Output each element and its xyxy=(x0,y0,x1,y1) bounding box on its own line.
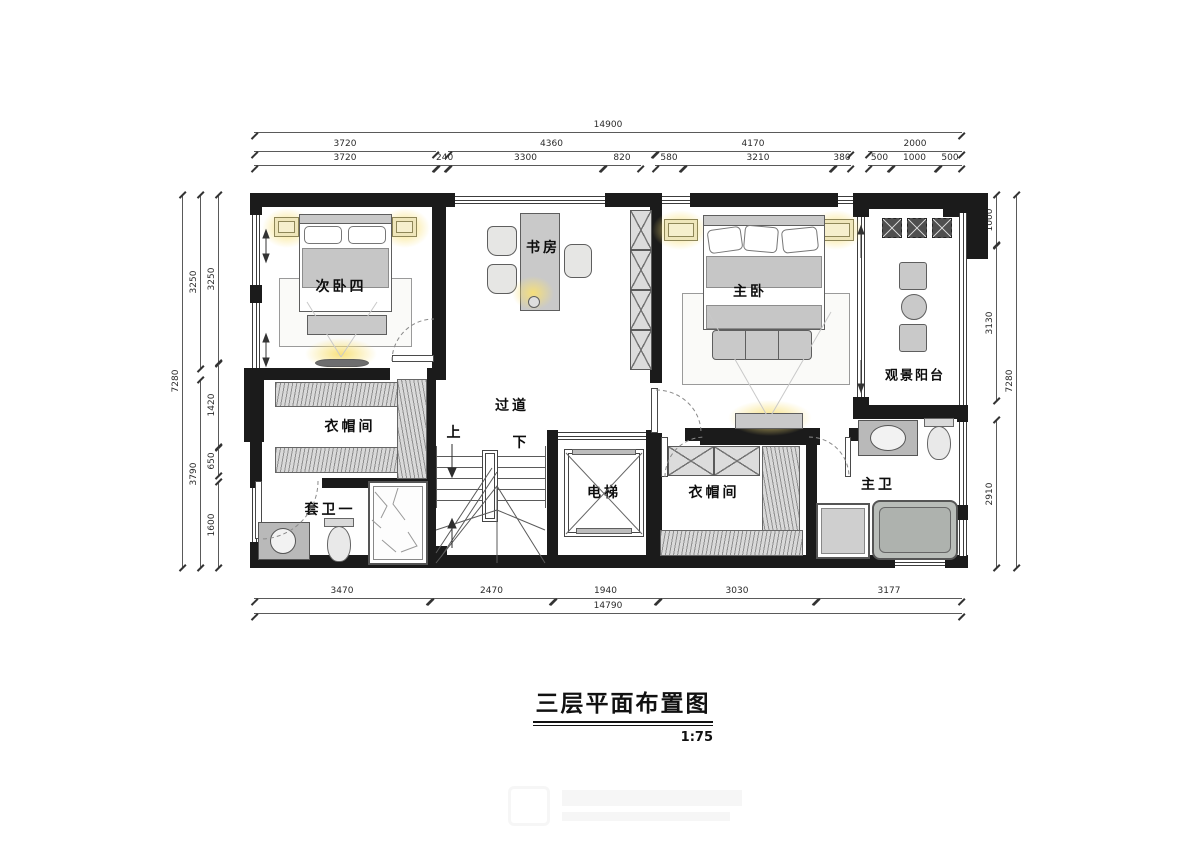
dim-top-r3-5: 3210 xyxy=(683,153,833,166)
desk-chair xyxy=(487,264,517,294)
nightstand xyxy=(820,219,854,241)
window-mark-arrow xyxy=(263,358,269,366)
window-masterbath-right-1 xyxy=(959,422,967,505)
dim-right-1: 3130 xyxy=(984,245,997,400)
dim-top-r2-3: 2000 xyxy=(868,139,962,152)
wall-balcony-south xyxy=(853,405,965,419)
bath1-toilet xyxy=(324,518,354,562)
wall-right-pier xyxy=(957,505,968,520)
dim-left-r2-1: 3790 xyxy=(188,380,201,567)
tv-console xyxy=(315,359,369,367)
desk-chair xyxy=(487,226,517,256)
room-label-bath1: 套卫一 xyxy=(305,499,356,519)
wall-closet2-north xyxy=(700,433,820,445)
window-mark-arrow xyxy=(263,334,269,342)
stairs-up-label: 上 xyxy=(447,422,464,442)
dim-top-r3-8: 1000 xyxy=(891,153,938,166)
bathtub xyxy=(872,500,958,560)
wall-left-corner-top xyxy=(250,193,262,215)
dim-top-r3-1: 240 xyxy=(436,153,448,166)
dim-top-r3-3: 820 xyxy=(603,153,641,166)
window-balcony-right xyxy=(959,213,967,405)
dim-top-r3-2: 3300 xyxy=(448,153,603,166)
balcony-table xyxy=(901,294,927,320)
balcony-stool xyxy=(899,324,927,352)
dim-top-r2-0: 3720 xyxy=(254,139,436,152)
wall-elevator-right xyxy=(646,430,657,568)
room-label-balcony: 观景阳台 xyxy=(885,365,945,384)
dim-bot-0: 3470 xyxy=(254,586,430,599)
bench-divider xyxy=(745,331,746,359)
bath1-shower xyxy=(368,481,428,565)
dim-top-r2-2: 4170 xyxy=(655,139,851,152)
dim-bot-4: 3177 xyxy=(816,586,962,599)
clothes-rack xyxy=(660,530,803,556)
wall-left-pier xyxy=(250,285,262,303)
pillar-master-balcony-top xyxy=(853,193,869,217)
dim-left-r2-0: 3250 xyxy=(188,195,201,368)
stairs-newel xyxy=(482,450,498,522)
wall-right-corner xyxy=(957,556,968,568)
bed-bench xyxy=(307,315,387,335)
cabinet-cell xyxy=(714,446,760,476)
window-masterbath-right-2 xyxy=(959,520,967,556)
wall-elevator-left xyxy=(547,430,558,568)
cabinet-cell xyxy=(630,250,652,290)
dim-left-r3-1: 1420 xyxy=(206,363,219,447)
elevator-sill xyxy=(576,528,632,534)
cabinet-cell xyxy=(630,210,652,250)
pillow xyxy=(348,226,386,244)
floor-plan-sheet: 14900 3720 4360 4170 2000 3720 240 3300 … xyxy=(0,0,1200,842)
clothes-rack xyxy=(275,382,398,407)
room-label-study: 书房 xyxy=(526,237,560,257)
pillow xyxy=(743,225,779,254)
drawing-scale: 1:75 xyxy=(533,730,713,745)
dim-top-total: 14900 xyxy=(254,120,962,133)
clothes-rack xyxy=(275,447,398,473)
room-label-elevator: 电梯 xyxy=(585,482,623,502)
desk xyxy=(520,213,560,311)
wall-right-top xyxy=(957,193,968,213)
wall-closet1-corridor xyxy=(427,368,436,568)
door-leaf-bedroom4 xyxy=(392,355,434,362)
bath2-shower xyxy=(816,503,870,559)
dim-left-r3-2: 650 xyxy=(206,447,219,475)
dim-bot-1: 2470 xyxy=(430,586,553,599)
nightstand xyxy=(274,217,299,237)
pillar-stairs-bottom xyxy=(425,546,447,568)
arrow-head xyxy=(448,519,456,528)
window-study-top xyxy=(455,196,605,204)
pillow xyxy=(304,226,342,244)
dim-right-total: 7280 xyxy=(1004,195,1017,567)
potted-plant xyxy=(882,218,902,238)
title-underline xyxy=(533,721,713,726)
headboard xyxy=(299,214,392,224)
wall-bedroom4-study xyxy=(432,193,446,380)
bath2-toilet xyxy=(924,418,954,460)
title-block: 三层平面布置图 1:75 xyxy=(533,684,713,745)
nightstand xyxy=(664,219,698,241)
cabinet-cell xyxy=(630,290,652,330)
window-master-balcony xyxy=(857,217,865,397)
window-mark-arrow xyxy=(263,230,269,238)
wall-top-master xyxy=(690,193,838,207)
drawing-title: 三层平面布置图 xyxy=(533,684,713,718)
dim-top-r2-1: 4360 xyxy=(448,139,655,152)
headboard xyxy=(703,215,825,226)
room-label-closet-right: 衣帽间 xyxy=(689,482,740,502)
potted-plant xyxy=(907,218,927,238)
toilet-bowl xyxy=(327,526,351,562)
pillow xyxy=(706,226,743,254)
bed-bench xyxy=(712,330,812,360)
cabinet-cell xyxy=(668,446,714,476)
watermark-text-bar xyxy=(562,812,730,821)
wall-left-lower xyxy=(250,442,262,482)
wall-bottom-left xyxy=(250,555,655,568)
room-label-closet-left: 衣帽间 xyxy=(325,416,376,436)
wall-top-pillar-mid xyxy=(605,193,652,207)
desk-chair xyxy=(564,244,592,278)
cabinet-cell xyxy=(630,330,652,370)
pillow xyxy=(781,226,819,254)
door-arc-master xyxy=(656,390,701,433)
wall-bedroom4-south xyxy=(250,368,390,380)
watermark-text-bar xyxy=(562,790,742,806)
dim-bot-2: 1940 xyxy=(553,586,658,599)
room-label-bath2: 主卫 xyxy=(861,474,895,494)
room-label-corridor: 过道 xyxy=(495,395,529,415)
wall-top-bedroom4 xyxy=(250,193,432,207)
dim-left-r3-0: 3250 xyxy=(206,195,219,363)
elevator-sill xyxy=(572,449,636,455)
dim-right-2: 2910 xyxy=(984,420,997,567)
desk-lamp xyxy=(528,296,540,308)
window-master-top-left xyxy=(658,196,690,204)
bath1-basin xyxy=(270,528,296,554)
door-leaf-closet2 xyxy=(661,437,668,477)
stairs-down-label: 下 xyxy=(513,432,530,452)
dim-top-r3-4: 580 xyxy=(655,153,683,166)
bench-divider xyxy=(778,331,779,359)
window-bedroom4-left-1 xyxy=(252,215,260,285)
elevator-door xyxy=(558,432,646,440)
balcony-stool xyxy=(899,262,927,290)
dim-left-total: 7280 xyxy=(170,195,183,567)
clothes-rack-vertical xyxy=(397,379,427,479)
dim-bot-total: 14790 xyxy=(254,601,962,614)
window-bedroom4-left-2 xyxy=(252,303,260,368)
dim-bot-3: 3030 xyxy=(658,586,816,599)
dim-left-r3-3: 1600 xyxy=(206,482,219,567)
dim-top-r3-0: 3720 xyxy=(254,153,436,166)
watermark-logo xyxy=(508,786,550,826)
dim-top-r3-7: 500 xyxy=(868,153,891,166)
dim-top-r3-9: 500 xyxy=(938,153,962,166)
room-label-master: 主卧 xyxy=(733,281,767,301)
blanket xyxy=(706,305,822,329)
room-label-bedroom4: 次卧四 xyxy=(316,276,367,296)
nightstand xyxy=(392,217,417,237)
window-mark-arrow xyxy=(263,254,269,262)
toilet-bowl xyxy=(927,426,951,460)
potted-plant xyxy=(932,218,952,238)
bath2-basin xyxy=(870,425,906,451)
dim-top-r3-6: 380 xyxy=(833,153,851,166)
door-leaf-master xyxy=(651,388,658,433)
door-leaf-bath2 xyxy=(845,437,851,477)
tv-console-master xyxy=(735,413,803,429)
